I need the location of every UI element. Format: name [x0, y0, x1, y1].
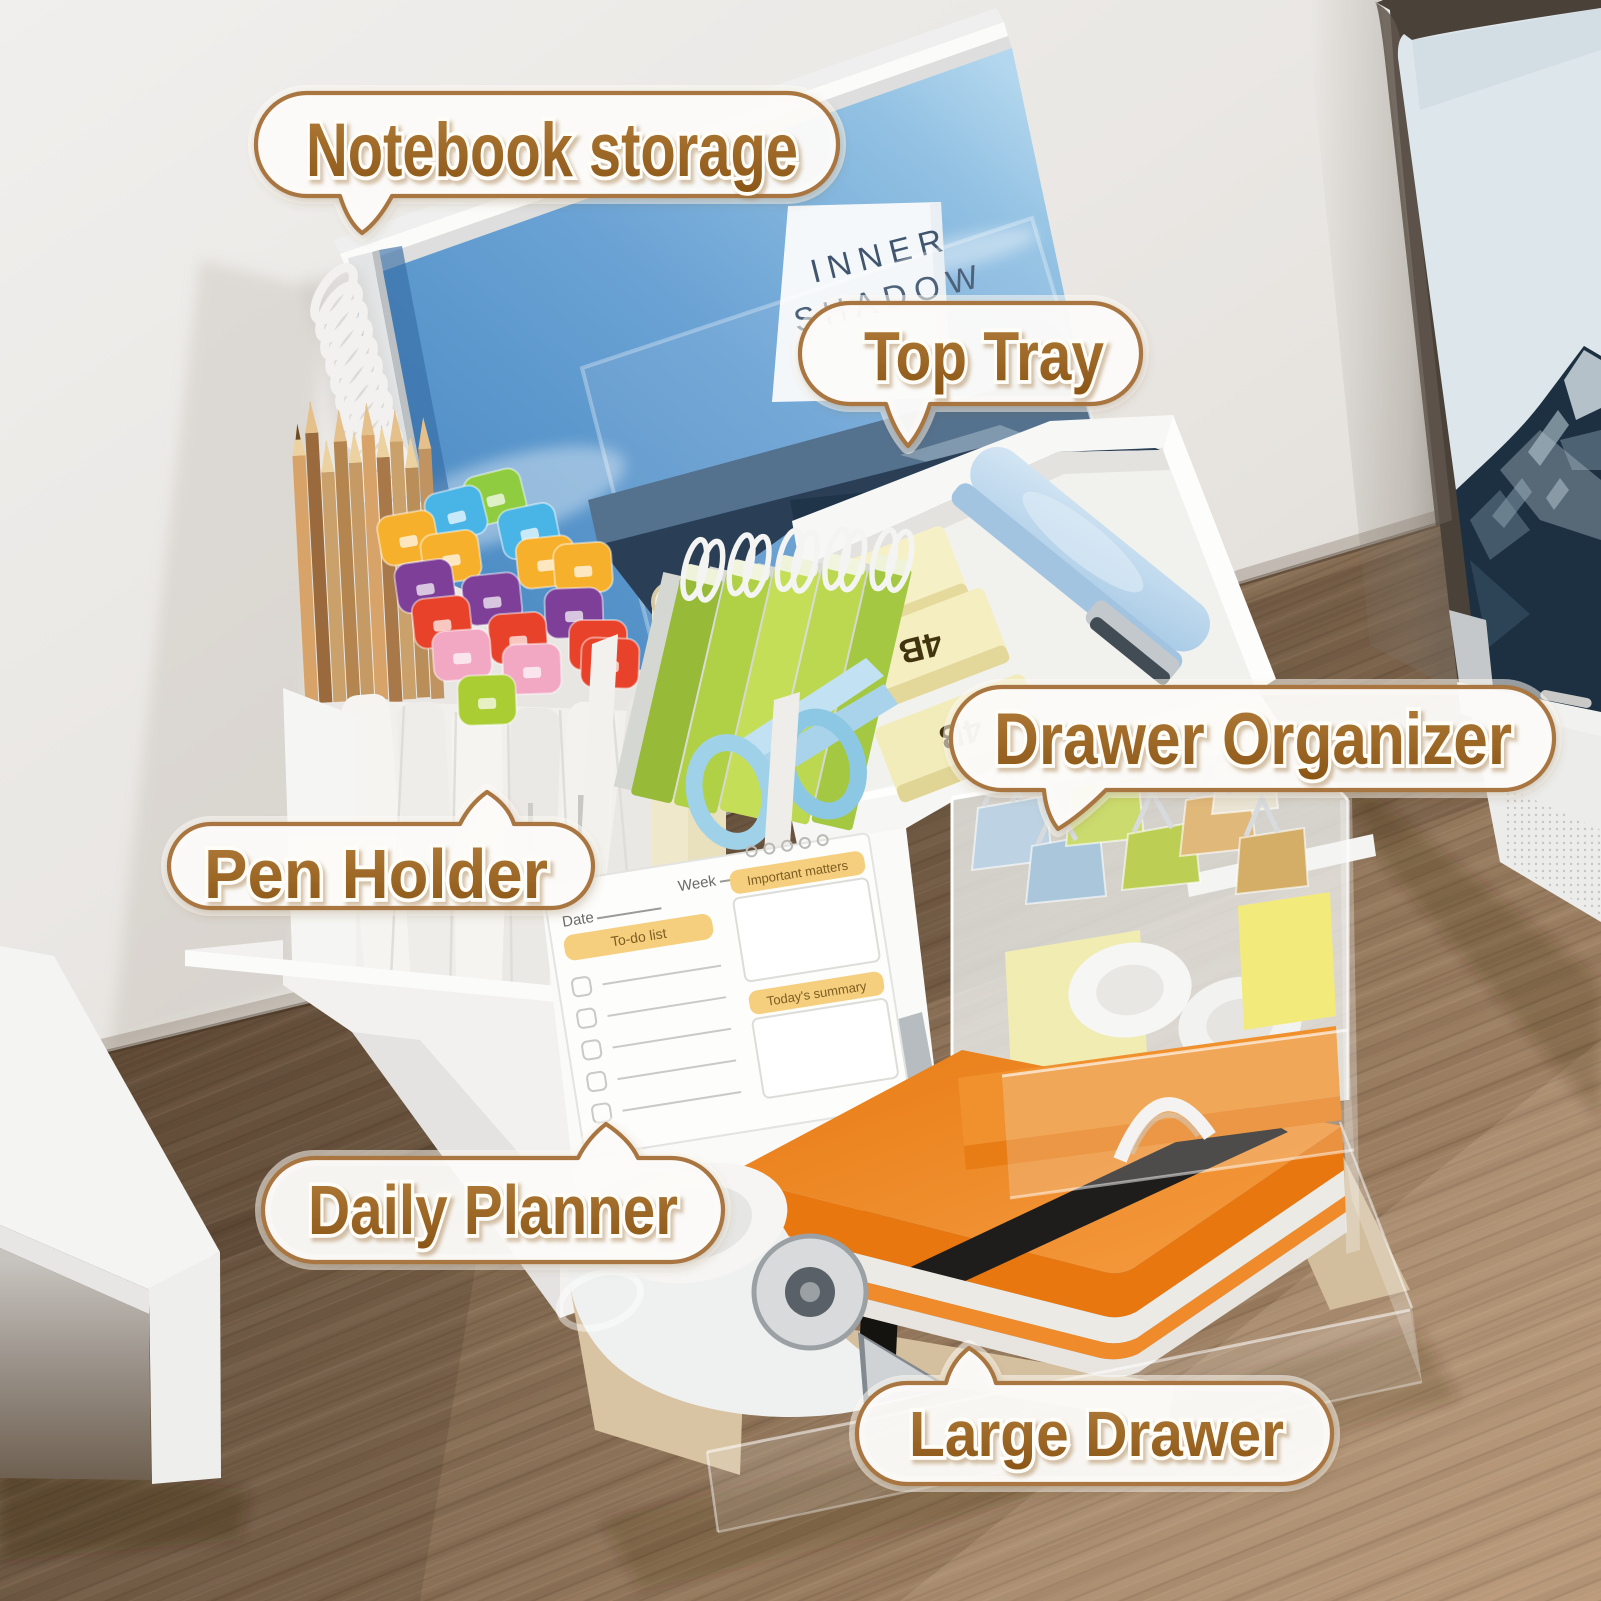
svg-text:Drawer Organizer: Drawer Organizer [994, 699, 1512, 780]
svg-text:Top Tray: Top Tray [864, 317, 1104, 395]
svg-text:Pen Holder: Pen Holder [204, 835, 548, 913]
svg-text:Daily Planner: Daily Planner [308, 1171, 678, 1249]
svg-text:Large Drawer: Large Drawer [909, 1398, 1284, 1470]
svg-text:Notebook storage: Notebook storage [306, 108, 798, 193]
